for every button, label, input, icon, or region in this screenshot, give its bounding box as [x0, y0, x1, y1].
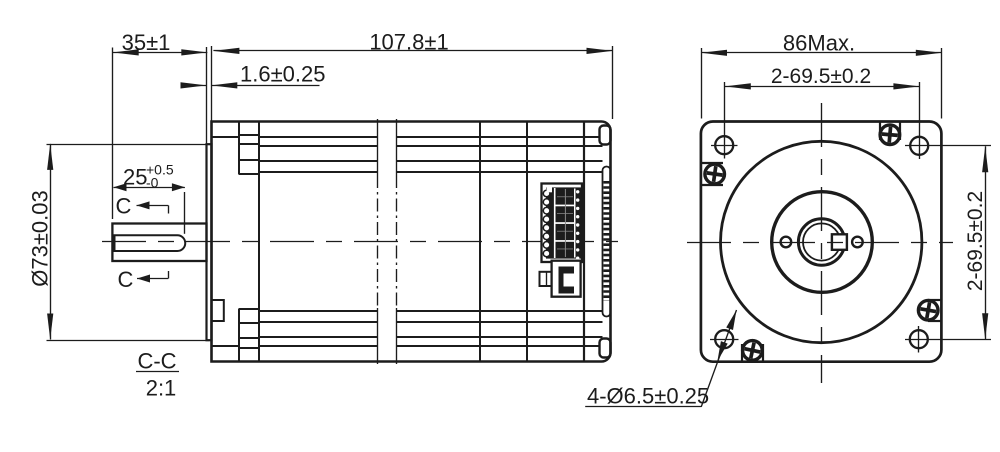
svg-text:107.8±1: 107.8±1: [369, 30, 448, 55]
svg-text:-0: -0: [146, 175, 159, 191]
svg-text:35±1: 35±1: [122, 30, 171, 55]
svg-text:2:1: 2:1: [146, 376, 177, 401]
svg-text:1.6±0.25: 1.6±0.25: [240, 62, 325, 87]
svg-text:C-C: C-C: [137, 349, 176, 374]
svg-text:C: C: [118, 267, 134, 292]
svg-text:2-69.5±0.2: 2-69.5±0.2: [964, 191, 987, 291]
svg-text:C: C: [116, 194, 132, 219]
svg-text:4-Ø6.5±0.25: 4-Ø6.5±0.25: [587, 384, 709, 409]
svg-text:86Max.: 86Max.: [783, 31, 855, 56]
svg-text:25: 25: [123, 165, 147, 190]
svg-text:Ø73±0.03: Ø73±0.03: [28, 190, 53, 286]
svg-text:2-69.5±0.2: 2-69.5±0.2: [771, 65, 871, 88]
